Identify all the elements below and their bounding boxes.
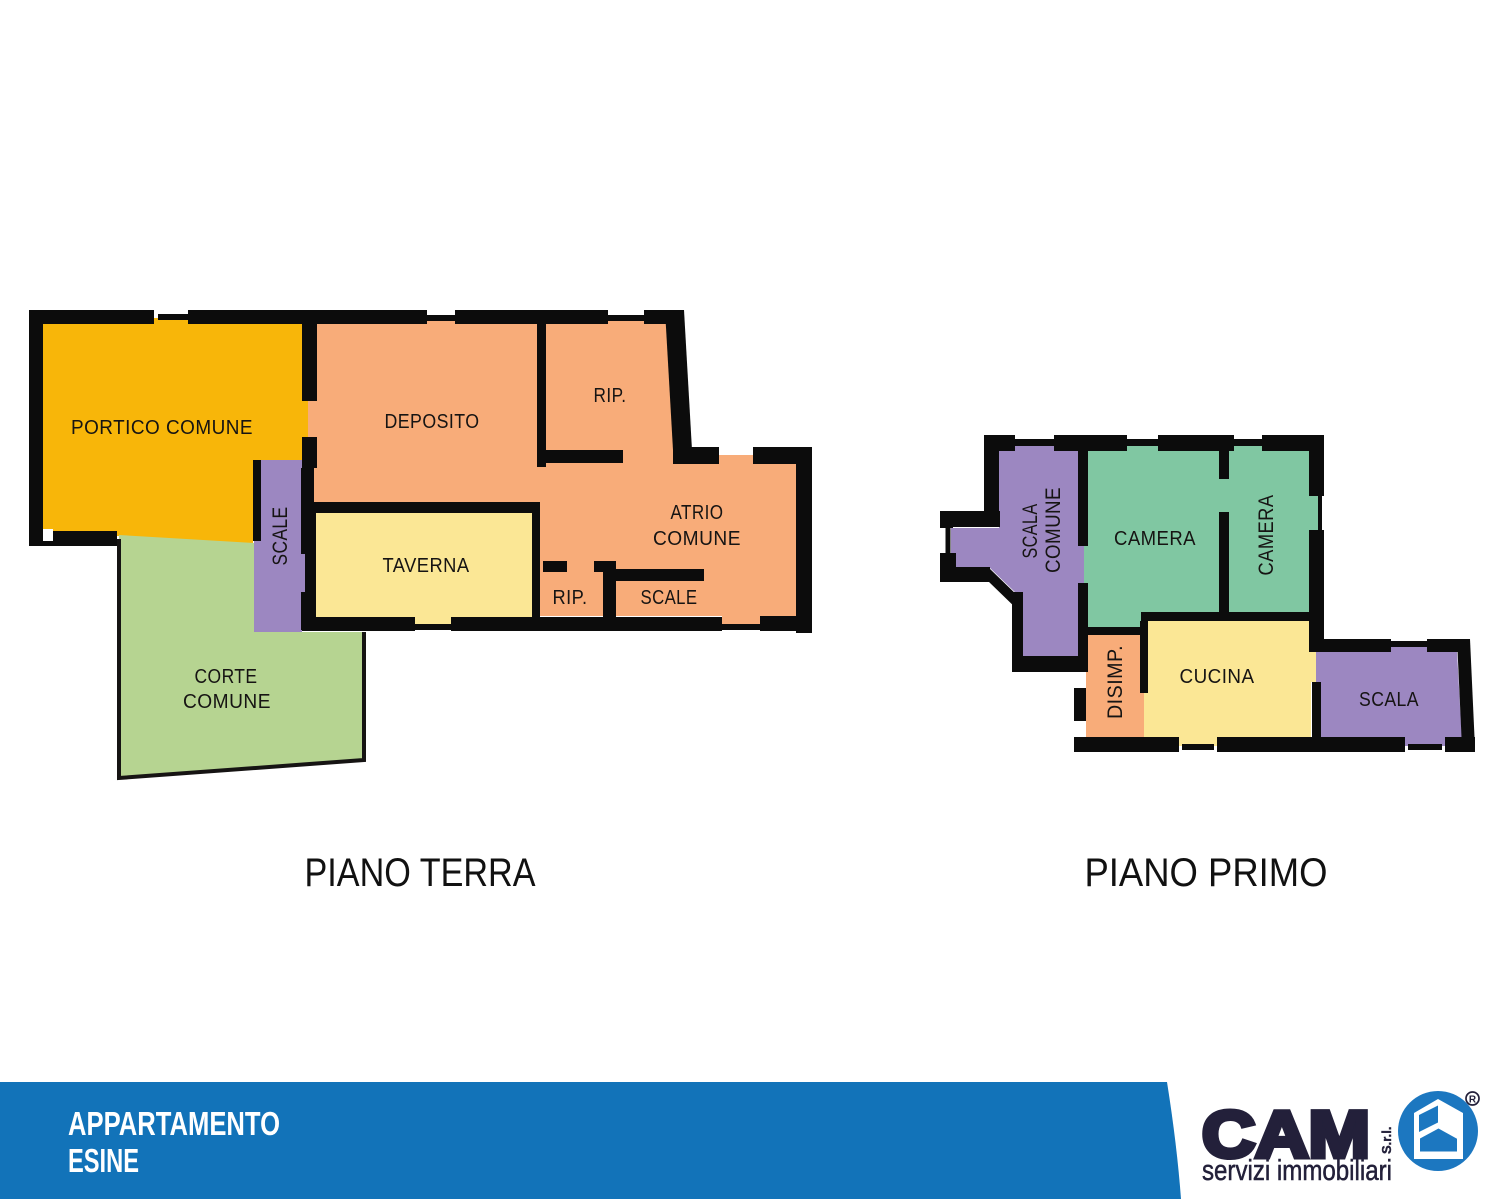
svg-text:PIANO PRIMO: PIANO PRIMO bbox=[1085, 851, 1328, 895]
svg-text:servizi immobiliari: servizi immobiliari bbox=[1202, 1155, 1392, 1187]
svg-text:CAMERA: CAMERA bbox=[1114, 528, 1196, 550]
svg-text:PORTICO COMUNE: PORTICO COMUNE bbox=[71, 417, 253, 439]
svg-text:DISIMP.: DISIMP. bbox=[1104, 645, 1127, 719]
svg-text:SCALE: SCALE bbox=[641, 587, 698, 609]
svg-text:APPARTAMENTO: APPARTAMENTO bbox=[68, 1105, 280, 1142]
svg-text:SCALA: SCALA bbox=[1019, 504, 1042, 559]
svg-text:RIP.: RIP. bbox=[594, 385, 627, 407]
svg-text:TAVERNA: TAVERNA bbox=[383, 555, 470, 577]
svg-text:CORTE: CORTE bbox=[195, 666, 258, 688]
svg-text:PIANO TERRA: PIANO TERRA bbox=[305, 851, 536, 895]
svg-text:ATRIO: ATRIO bbox=[671, 502, 724, 524]
svg-text:CAMERA: CAMERA bbox=[1255, 495, 1278, 576]
svg-text:R: R bbox=[1469, 1095, 1477, 1106]
svg-text:CUCINA: CUCINA bbox=[1180, 666, 1255, 688]
svg-text:COMUNE: COMUNE bbox=[183, 691, 271, 713]
svg-text:ESINE: ESINE bbox=[68, 1142, 139, 1179]
svg-text:DEPOSITO: DEPOSITO bbox=[385, 411, 480, 433]
svg-text:SCALE: SCALE bbox=[269, 507, 292, 566]
svg-text:RIP.: RIP. bbox=[553, 587, 588, 609]
svg-text:SCALA: SCALA bbox=[1359, 689, 1419, 711]
svg-text:S.r.l.: S.r.l. bbox=[1379, 1127, 1394, 1154]
svg-text:COMUNE: COMUNE bbox=[653, 528, 741, 550]
svg-text:COMUNE: COMUNE bbox=[1042, 487, 1065, 573]
